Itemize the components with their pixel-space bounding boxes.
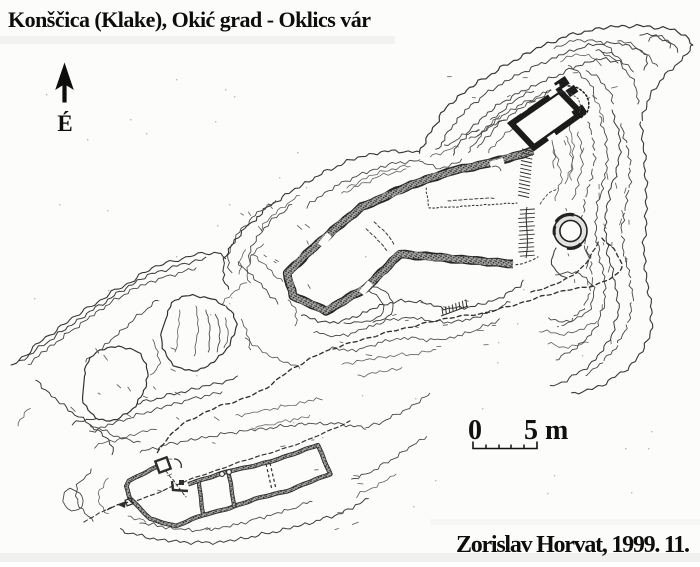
svg-text:É: É	[57, 111, 72, 136]
svg-text:Zorislav Horvat, 1999. 11.: Zorislav Horvat, 1999. 11.	[456, 532, 690, 558]
svg-text:Konščica (Klake), Okić grad -: Konščica (Klake), Okić grad - Oklics vár	[8, 7, 371, 32]
svg-text:0: 0	[468, 415, 482, 446]
svg-text:5 m: 5 m	[524, 415, 568, 446]
